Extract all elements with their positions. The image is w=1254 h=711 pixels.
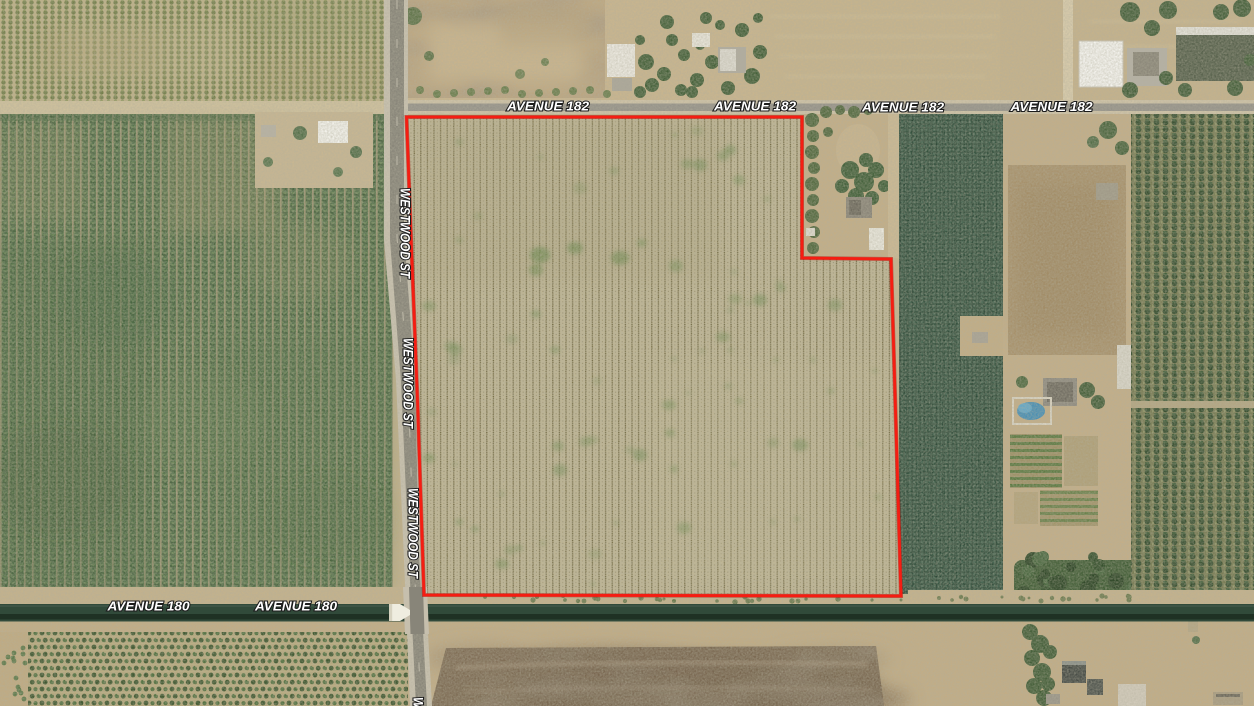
svg-text:WESTWOOD ST: WESTWOOD ST: [400, 338, 415, 429]
svg-text:AVENUE 180: AVENUE 180: [106, 598, 190, 613]
svg-text:AVENUE 182: AVENUE 182: [506, 98, 590, 113]
svg-text:AVENUE 180: AVENUE 180: [254, 598, 338, 613]
svg-text:WESTWOOD ST: WESTWOOD ST: [410, 697, 425, 706]
svg-text:WESTWOOD ST: WESTWOOD ST: [397, 188, 412, 279]
svg-text:WESTWOOD ST: WESTWOOD ST: [405, 488, 420, 579]
svg-text:AVENUE 182: AVENUE 182: [1009, 99, 1093, 114]
svg-text:AVENUE 182: AVENUE 182: [861, 99, 945, 114]
svg-text:AVENUE 182: AVENUE 182: [713, 98, 797, 113]
